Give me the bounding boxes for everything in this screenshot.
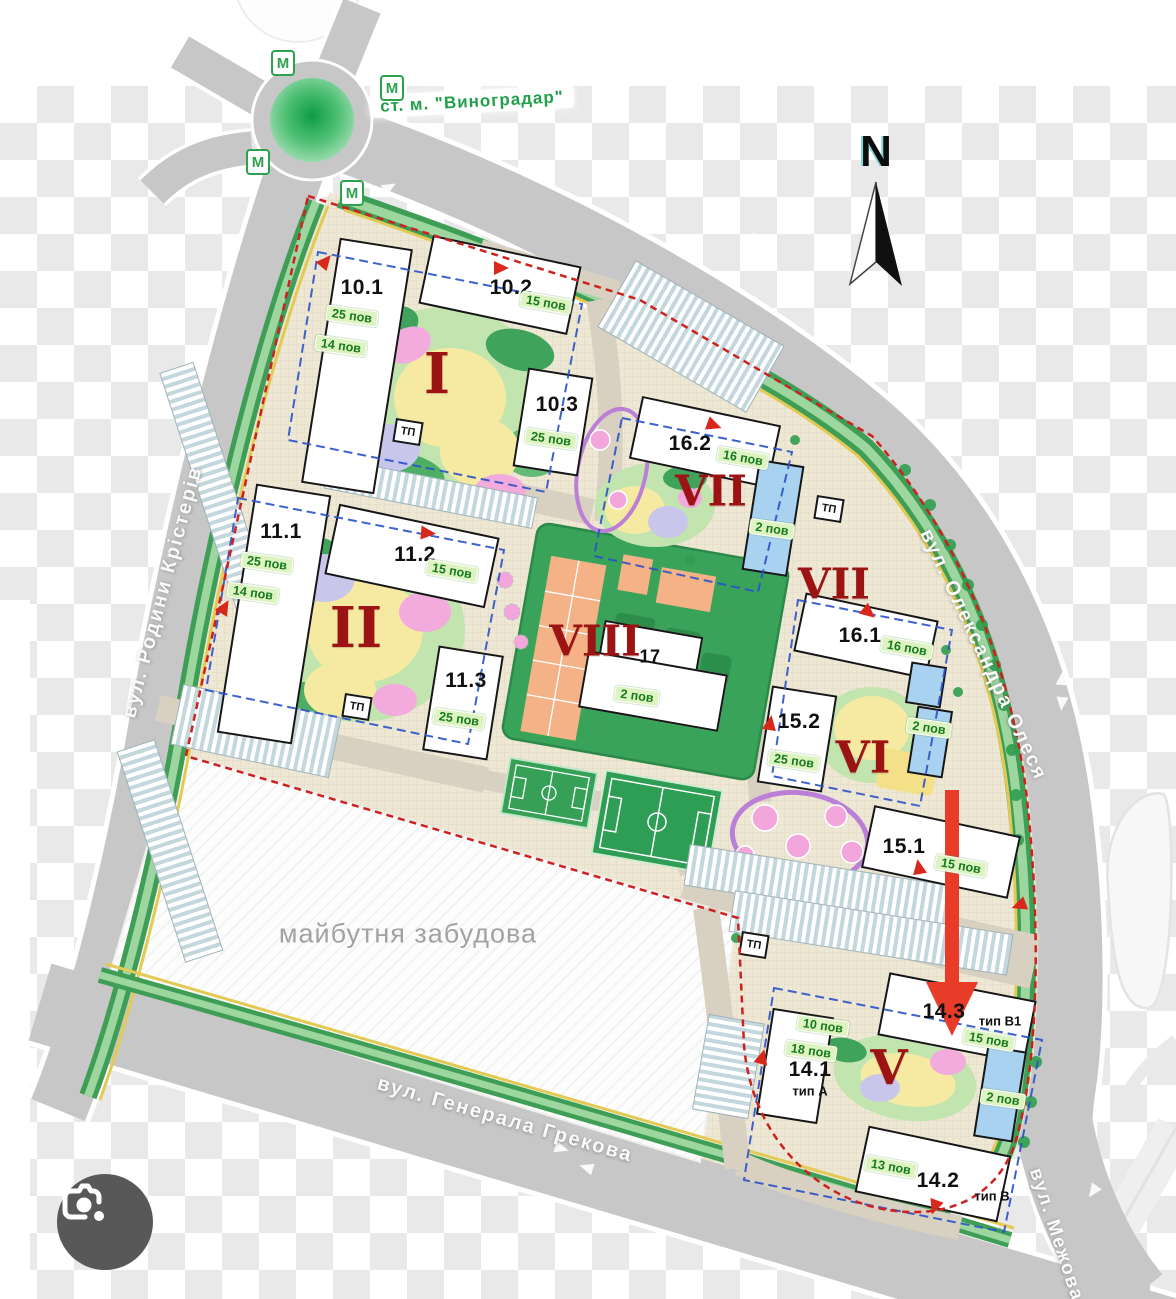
section-V: V (870, 1040, 907, 1096)
metro-m-letter: М (386, 80, 399, 97)
metro-m-marker: М (271, 50, 295, 76)
tp-substation: ТП (738, 931, 769, 959)
camera-icon[interactable] (57, 1174, 153, 1270)
tp-substation: ТП (341, 693, 372, 721)
building-14.3-number: 14.3 (923, 1000, 966, 1024)
north-label: N (860, 127, 892, 176)
building-14.3-type: тип В1 (979, 1014, 1021, 1029)
section-I: I (424, 341, 450, 407)
section-VIII: VIII (549, 617, 641, 666)
future-development-label: майбутня забудова (279, 919, 537, 949)
building-15.2-number: 15.2 (778, 710, 821, 734)
section-VII-a: VII (675, 467, 747, 516)
camera-glyph (57, 1174, 113, 1230)
building-15.1-number: 15.1 (883, 835, 926, 859)
metro-m-letter: М (277, 55, 290, 72)
building-14.2-number: 14.2 (917, 1169, 960, 1193)
section-II: II (330, 595, 382, 661)
roundabout-green-island (270, 78, 354, 162)
tp-substation: ТП (392, 418, 423, 446)
tp-substation: ТП (813, 495, 844, 523)
north-arrow (850, 182, 902, 286)
building-14.2-type: тип В (974, 1189, 1009, 1204)
building-10.1-number: 10.1 (341, 276, 384, 300)
metro-m-letter: М (252, 154, 265, 171)
building-14.1-number: 14.1 (789, 1058, 832, 1082)
section-VI: VI (836, 733, 891, 784)
building-16.2-number: 16.2 (669, 432, 712, 456)
section-VII-b: VII (798, 560, 870, 609)
tp-label: ТП (400, 425, 416, 439)
building-11.3-number: 11.3 (445, 669, 487, 693)
building-17-number: 17 (639, 647, 660, 668)
metro-m-marker: М (340, 180, 364, 206)
tp-label: ТП (821, 502, 837, 516)
metro-m-marker: М (380, 75, 404, 101)
tp-label: ТП (746, 938, 762, 952)
building-14.1-type: тип А (792, 1084, 827, 1099)
tp-label: ТП (349, 700, 365, 714)
metro-m-marker: М (246, 149, 270, 175)
building-service-2pov-vi-a (905, 661, 947, 708)
metro-m-letter: М (346, 185, 359, 202)
site-plan-map: ТП ТП ТП ТП (0, 0, 1176, 1299)
building-16.1-number: 16.1 (839, 624, 882, 648)
building-10.3-number: 10.3 (536, 393, 579, 417)
building-11.1-number: 11.1 (260, 520, 302, 544)
